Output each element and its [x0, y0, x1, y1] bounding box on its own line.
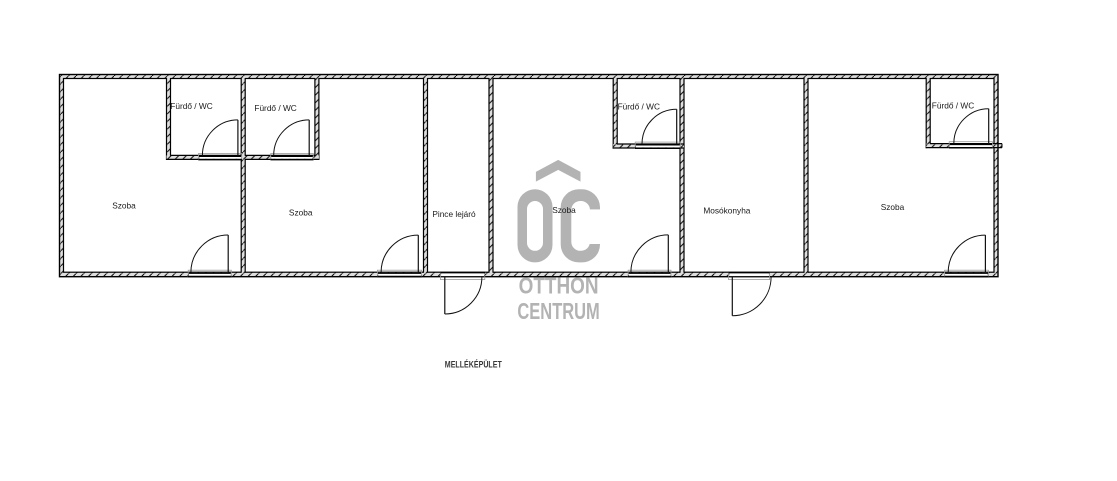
svg-text:CENTRUM: CENTRUM [517, 298, 599, 324]
svg-text:Pince lejáró: Pince lejáró [432, 209, 476, 219]
svg-text:Fürdő / WC: Fürdő / WC [170, 101, 212, 111]
svg-text:Fürdő / WC: Fürdő / WC [254, 103, 296, 113]
svg-text:Szoba: Szoba [881, 202, 905, 212]
svg-text:MELLÉKÉPÜLET: MELLÉKÉPÜLET [445, 359, 502, 369]
svg-text:Fürdő / WC: Fürdő / WC [618, 101, 660, 111]
svg-text:Szoba: Szoba [112, 201, 136, 211]
svg-text:Mosókonyha: Mosókonyha [703, 205, 750, 215]
svg-text:Szoba: Szoba [552, 205, 576, 215]
svg-text:Fürdő / WC: Fürdő / WC [932, 101, 974, 111]
svg-text:Szoba: Szoba [289, 208, 313, 218]
